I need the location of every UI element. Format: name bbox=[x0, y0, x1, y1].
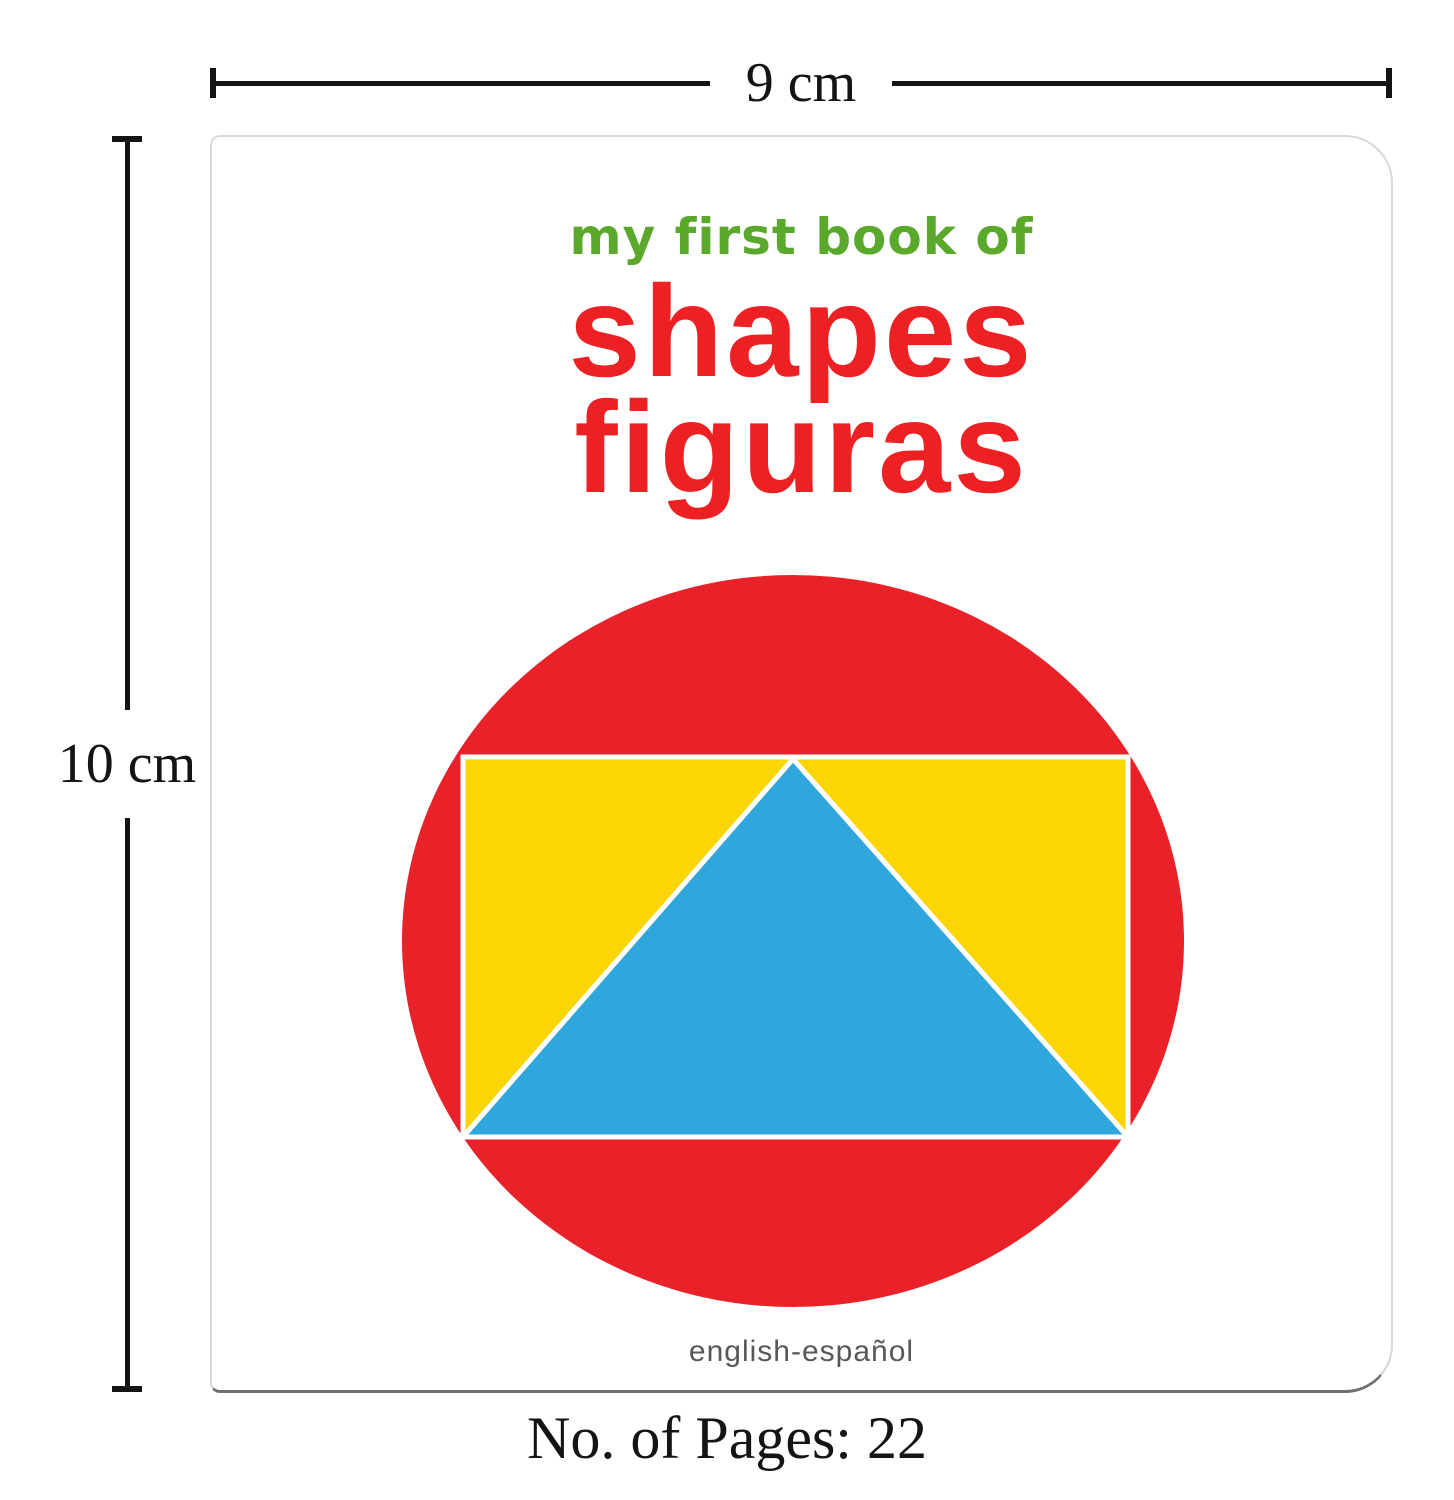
height-dimension-bottom-tick bbox=[112, 1386, 142, 1392]
height-dimension-line-top bbox=[125, 142, 130, 710]
book-title-english: shapes bbox=[212, 273, 1391, 389]
width-dimension-line-left bbox=[216, 81, 710, 86]
width-dimension-right-tick bbox=[1386, 68, 1392, 98]
book-title-spanish: figuras bbox=[212, 389, 1391, 505]
height-dimension-line-bottom bbox=[125, 818, 130, 1386]
width-dimension: 9 cm bbox=[210, 55, 1392, 111]
height-dimension-label: 10 cm bbox=[58, 736, 196, 792]
width-dimension-line-right bbox=[892, 81, 1386, 86]
page-count-label: No. of Pages: 22 bbox=[0, 1404, 1454, 1473]
shapes-graphic bbox=[402, 575, 1184, 1307]
book-title: shapes figuras bbox=[212, 273, 1391, 505]
height-dimension: 10 cm bbox=[57, 136, 197, 1392]
width-dimension-label: 9 cm bbox=[710, 55, 892, 111]
book-cover: my first book of shapes figuras english-… bbox=[210, 135, 1393, 1393]
product-dimension-figure: 9 cm 10 cm my first book of shapes figur… bbox=[0, 0, 1454, 1500]
language-note: english-español bbox=[212, 1335, 1391, 1369]
